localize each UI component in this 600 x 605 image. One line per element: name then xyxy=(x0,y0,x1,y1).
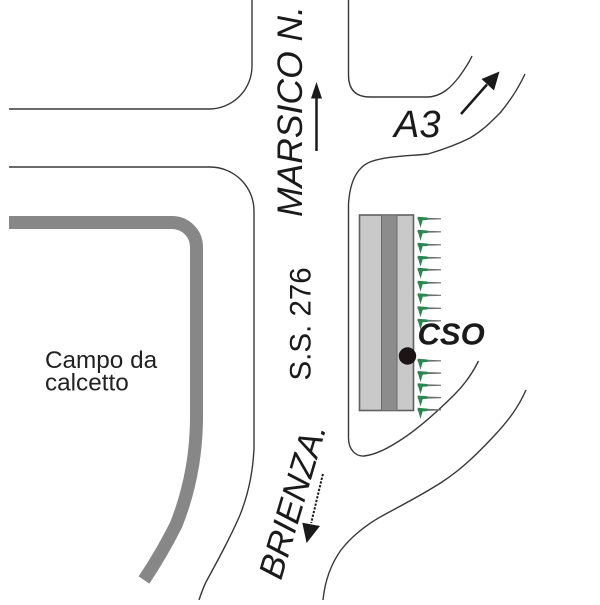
svg-text:BRIENZA.: BRIENZA. xyxy=(252,419,334,583)
svg-text:calcetto: calcetto xyxy=(45,370,129,397)
svg-text:MARSICO N.: MARSICO N. xyxy=(270,6,310,217)
svg-text:A3: A3 xyxy=(392,104,440,146)
svg-text:CSO: CSO xyxy=(418,317,485,352)
svg-text:S.S. 276: S.S. 276 xyxy=(285,267,318,380)
